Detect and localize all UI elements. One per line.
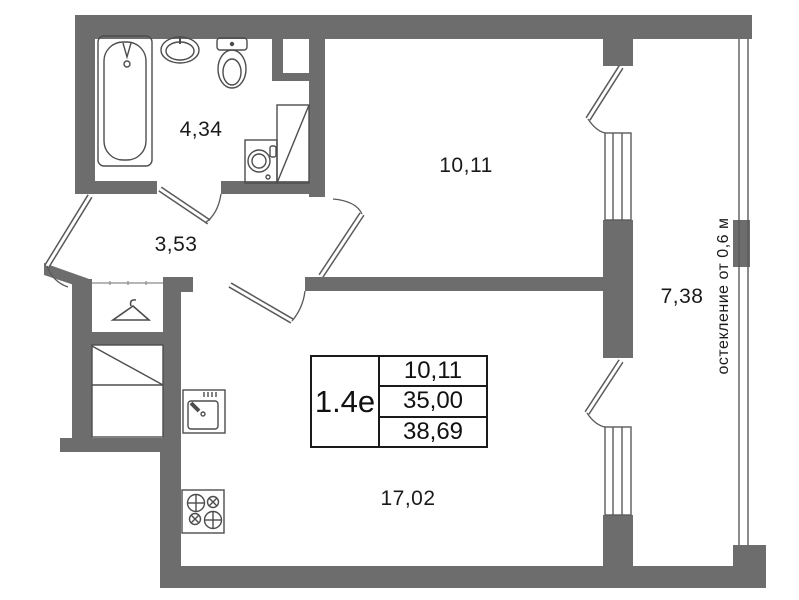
living-balcony-window: [605, 427, 631, 515]
room-label-balcony: 7,38: [661, 285, 704, 309]
stove: [182, 490, 224, 533]
balcony-glazing: [739, 39, 748, 545]
wardrobe-open-edge: [92, 281, 163, 285]
wall-living-left: [160, 438, 181, 568]
room-label-kitchen-living: 17,02: [380, 487, 435, 511]
wall-bath-bedroom-divider: [309, 39, 325, 197]
closet: [92, 345, 163, 437]
wall-wardrobe-divider: [92, 332, 163, 345]
wall-niche-bottom: [272, 73, 309, 81]
kitchen-sink: [183, 390, 225, 433]
shaft: [277, 105, 309, 183]
unit-table-living-area: 35,00: [380, 385, 486, 415]
wall-wardrobe-right: [163, 277, 181, 440]
wall-bath-left: [75, 39, 95, 194]
wardrobe-hanger-icon: [113, 300, 149, 320]
living-room-door: [230, 285, 305, 321]
unit-table-values: 10,11 35,00 38,69: [380, 357, 486, 446]
room-label-hallway: 3,53: [155, 233, 198, 257]
toilet: [217, 38, 247, 88]
bedroom-balcony-window: [605, 133, 631, 220]
bedroom-balcony-door: [588, 67, 621, 133]
wall-wardrobe-bottom: [60, 438, 164, 452]
unit-label: 1.4е: [312, 357, 380, 446]
wall-top: [75, 15, 752, 39]
floor-plan: 4,34 3,53 10,11 17,02 7,38 остекление от…: [0, 0, 799, 600]
unit-table-room-area: 10,11: [380, 357, 486, 385]
wall-bedroom-living-divider: [305, 277, 633, 291]
unit-info-table: 1.4е 10,11 35,00 38,69: [310, 355, 488, 448]
wall-bottom: [160, 566, 766, 588]
bathtub: [98, 36, 152, 166]
washbasin: [161, 36, 199, 63]
wall-bottom-right-step: [733, 545, 766, 588]
bedroom-door: [321, 199, 362, 276]
wall-wardrobe-left: [72, 279, 92, 452]
wall-bath-bottom-left: [75, 181, 157, 194]
wall-wardrobe-right-top-block: [163, 277, 193, 292]
room-label-bedroom: 10,11: [439, 154, 493, 178]
washing-machine: [245, 140, 277, 183]
room-label-bathroom: 4,34: [180, 118, 223, 142]
glazing-note: остекление от 0,6 м: [715, 218, 733, 375]
unit-table-total-area: 38,69: [380, 416, 486, 446]
wall-balcony-corner-block: [603, 39, 633, 66]
living-balcony-door: [587, 361, 621, 427]
bathroom-door: [160, 189, 221, 223]
wall-right-mid: [603, 220, 633, 358]
